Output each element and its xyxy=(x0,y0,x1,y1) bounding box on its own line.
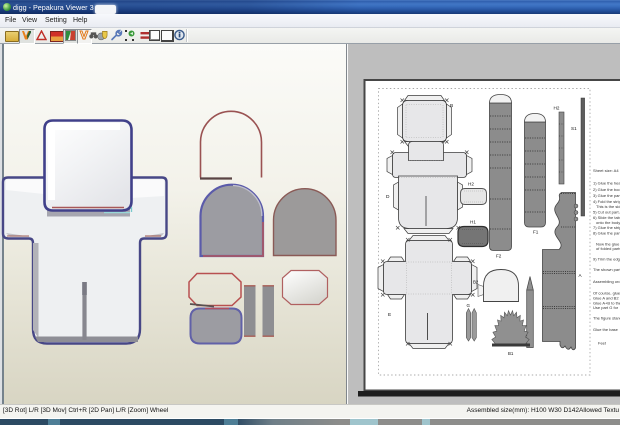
svg-text:2) Glue the body D: 2) Glue the body D xyxy=(593,187,620,192)
svg-text:H1: H1 xyxy=(470,220,476,225)
svg-text:of folded parts: of folded parts xyxy=(596,246,620,251)
svg-text:B1: B1 xyxy=(508,351,514,356)
svg-text:E: E xyxy=(388,312,391,318)
svg-text:The figure stands: The figure stands xyxy=(593,316,620,321)
svg-text:Feet: Feet xyxy=(598,341,607,346)
svg-text:S1: S1 xyxy=(571,126,577,131)
svg-text:7) Glue the strip: 7) Glue the strip xyxy=(593,225,620,230)
svg-text:Sheet size: A4: Sheet size: A4 xyxy=(593,168,619,173)
svg-text:Use part G for: Use part G for xyxy=(593,305,619,310)
svg-text:3) Glue the part E: 3) Glue the part E xyxy=(593,193,620,198)
svg-text:B2: B2 xyxy=(473,280,479,285)
svg-text:This is the side: This is the side xyxy=(596,204,620,209)
svg-text:D: D xyxy=(386,194,390,200)
svg-text:5) Cut out part A: 5) Cut out part A xyxy=(593,210,620,215)
svg-text:1) Glue the head B: 1) Glue the head B xyxy=(593,181,620,186)
svg-text:9) Trim the edge: 9) Trim the edge xyxy=(593,257,620,262)
svg-text:H2: H2 xyxy=(468,182,474,187)
svg-text:8) Glue the part: 8) Glue the part xyxy=(593,231,620,236)
svg-text:The shown parts: The shown parts xyxy=(593,267,620,272)
svg-text:F2: F2 xyxy=(496,254,502,259)
svg-text:Assembling order: Assembling order xyxy=(593,279,620,284)
svg-text:Glue the base: Glue the base xyxy=(593,327,619,332)
svg-text:H2: H2 xyxy=(554,106,560,111)
svg-text:F1: F1 xyxy=(533,230,539,235)
svg-text:G: G xyxy=(467,303,471,308)
svg-text:B: B xyxy=(450,103,453,109)
